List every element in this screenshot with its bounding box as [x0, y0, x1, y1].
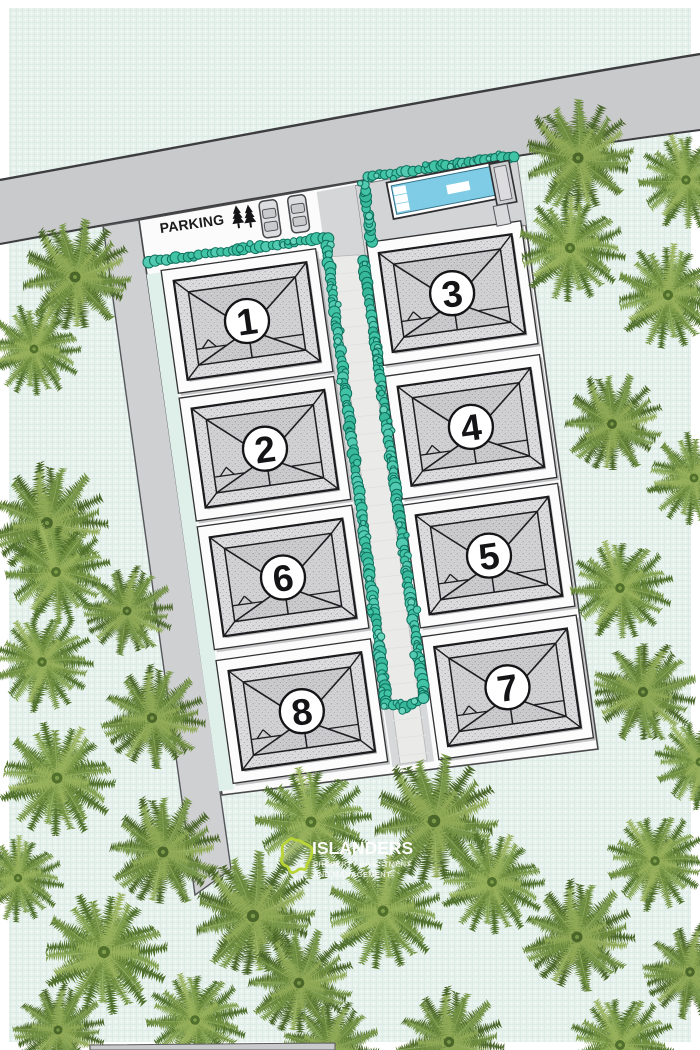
svg-text:AND MANAGEMENT: AND MANAGEMENT [313, 870, 391, 879]
svg-text:PROPERTY INVESTMENT: PROPERTY INVESTMENT [313, 860, 411, 869]
svg-text:ISLANDERS: ISLANDERS [312, 838, 413, 858]
